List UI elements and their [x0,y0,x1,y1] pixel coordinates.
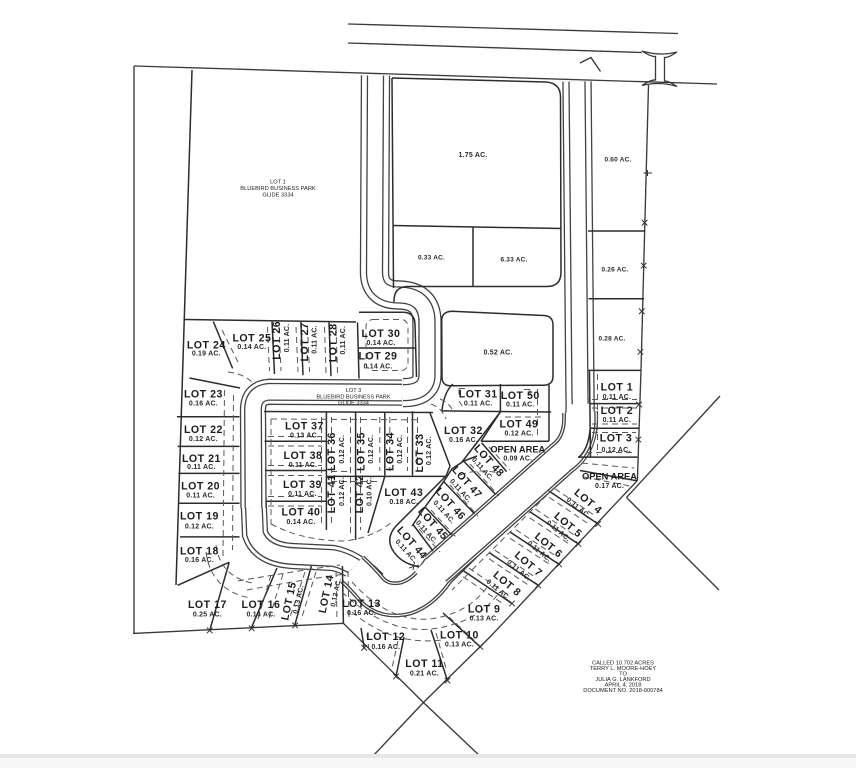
svg-text:LOT 34: LOT 34 [385,432,397,471]
svg-text:0.19 AC.: 0.19 AC. [192,350,221,357]
svg-text:0.60 AC.: 0.60 AC. [604,157,631,164]
svg-text:0.11 AC.: 0.11 AC. [288,491,317,498]
svg-text:0.11 AC.: 0.11 AC. [289,462,318,469]
svg-text:LOT 39: LOT 39 [283,479,322,491]
svg-text:LOT 28: LOT 28 [328,323,340,362]
svg-text:OPEN AREA: OPEN AREA [582,471,637,481]
svg-text:0.13 AC.: 0.13 AC. [445,642,474,649]
svg-text:LOT 9: LOT 9 [468,603,501,615]
svg-text:0.12 AC.: 0.12 AC. [602,447,631,454]
svg-text:0.09 AC.: 0.09 AC. [503,456,532,463]
svg-text:0.18 AC.: 0.18 AC. [389,499,418,506]
svg-text:0.33 AC.: 0.33 AC. [418,255,445,262]
svg-text:0.14 AC.: 0.14 AC. [237,344,266,351]
svg-text:LOT 37: LOT 37 [285,420,324,432]
svg-text:0.12 AC.: 0.12 AC. [368,435,375,464]
svg-text:0.11 AC.: 0.11 AC. [464,401,493,408]
svg-text:LOT 41: LOT 41 [326,474,338,513]
svg-text:0.16 AC.: 0.16 AC. [347,610,376,617]
svg-text:0.16 AC.: 0.16 AC. [371,644,400,651]
svg-text:0.28 AC.: 0.28 AC. [598,336,625,343]
svg-text:0.16 AC.: 0.16 AC. [449,437,478,444]
svg-text:0.12 AC.: 0.12 AC. [397,435,404,464]
svg-text:LOT 10: LOT 10 [440,629,479,641]
svg-text:0.12 AC.: 0.12 AC. [426,436,433,465]
svg-text:LOT 42: LOT 42 [354,474,366,513]
svg-text:0.14 AC.: 0.14 AC. [247,612,276,619]
svg-text:DOCUMENT NO. 2018-000784: DOCUMENT NO. 2018-000784 [583,688,663,694]
svg-text:LOT 11: LOT 11 [405,658,443,670]
svg-text:LOT 40: LOT 40 [282,507,321,519]
svg-text:0.11 AC.: 0.11 AC. [603,394,632,401]
svg-text:0.10 AC.: 0.10 AC. [367,477,374,506]
svg-text:0.11 AC.: 0.11 AC. [340,326,347,355]
svg-text:LOT 16: LOT 16 [242,599,281,611]
svg-text:0.14 AC.: 0.14 AC. [367,340,396,347]
svg-text:LOT 31: LOT 31 [459,389,498,401]
svg-text:LOT 50: LOT 50 [501,390,540,402]
svg-text:LOT 33: LOT 33 [414,434,426,473]
svg-text:0.17 AC.: 0.17 AC. [595,483,624,490]
svg-text:LOT 3: LOT 3 [600,432,633,444]
svg-text:LOT 21: LOT 21 [182,453,221,465]
svg-text:1.75 AC.: 1.75 AC. [459,152,488,159]
svg-text:0.11 AC.: 0.11 AC. [506,401,535,408]
svg-text:0.13 AC.: 0.13 AC. [290,433,319,440]
svg-text:0.25 AC.: 0.25 AC. [193,612,222,619]
svg-text:LOT 2: LOT 2 [601,405,634,417]
svg-text:0.12 AC.: 0.12 AC. [339,435,346,464]
svg-text:0.11 AC.: 0.11 AC. [187,464,216,471]
svg-text:LOT 26: LOT 26 [271,321,283,360]
svg-text:0.16 AC.: 0.16 AC. [185,557,214,564]
svg-text:0.13 AC.: 0.13 AC. [470,616,499,623]
svg-text:0.26 AC.: 0.26 AC. [601,267,628,274]
svg-text:LOT 27: LOT 27 [299,323,311,362]
svg-text:0.12 AC.: 0.12 AC. [505,430,534,437]
svg-text:0.52 AC.: 0.52 AC. [484,350,513,357]
svg-text:LOT 43: LOT 43 [384,487,423,499]
svg-text:0.11 AC.: 0.11 AC. [186,493,215,500]
svg-text:0.14 AC.: 0.14 AC. [287,519,316,526]
svg-text:GLIDE 3334: GLIDE 3334 [338,401,369,407]
svg-text:0.12 AC.: 0.12 AC. [185,524,214,531]
svg-text:OPEN AREA: OPEN AREA [490,444,545,454]
svg-text:LOT 1: LOT 1 [601,382,634,394]
svg-text:LOT 3: LOT 3 [346,388,361,394]
svg-text:LOT 23: LOT 23 [184,389,223,401]
svg-text:0.11 AC.: 0.11 AC. [603,417,632,424]
svg-text:LOT 38: LOT 38 [284,450,323,462]
svg-text:LOT 19: LOT 19 [180,510,219,522]
svg-text:LOT 49: LOT 49 [500,419,539,431]
svg-text:LOT 36: LOT 36 [326,432,338,471]
svg-text:0.12 AC.: 0.12 AC. [339,477,346,506]
svg-text:LOT 32: LOT 32 [444,425,483,437]
svg-text:LOT 18: LOT 18 [180,545,219,557]
svg-text:LOT 20: LOT 20 [181,481,220,493]
svg-text:LOT 22: LOT 22 [184,424,223,436]
svg-text:6.33 AC.: 6.33 AC. [500,257,527,264]
svg-text:0.16 AC.: 0.16 AC. [189,401,218,408]
svg-text:LOT 30: LOT 30 [362,328,401,340]
svg-text:BLUEBIRD BUSINESS PARK: BLUEBIRD BUSINESS PARK [316,394,390,400]
svg-text:BLUEBIRD BUSINESS PARK: BLUEBIRD BUSINESS PARK [240,186,316,192]
svg-text:0.12 AC.: 0.12 AC. [189,436,218,443]
svg-text:LOT 25: LOT 25 [232,332,271,344]
svg-text:LOT 13: LOT 13 [342,598,381,610]
svg-text:0.11 AC.: 0.11 AC. [284,324,291,353]
svg-text:LOT 29: LOT 29 [359,351,398,363]
svg-text:0.14 AC.: 0.14 AC. [364,363,393,370]
svg-text:LOT 1: LOT 1 [270,180,286,186]
svg-text:LOT 17: LOT 17 [188,599,227,611]
svg-text:0.11 AC.: 0.11 AC. [312,325,319,354]
svg-text:LOT 12: LOT 12 [366,631,405,643]
svg-text:GLIDE 3334: GLIDE 3334 [262,193,293,199]
svg-text:LOT 35: LOT 35 [355,432,367,471]
svg-text:0.21 AC.: 0.21 AC. [410,671,439,678]
